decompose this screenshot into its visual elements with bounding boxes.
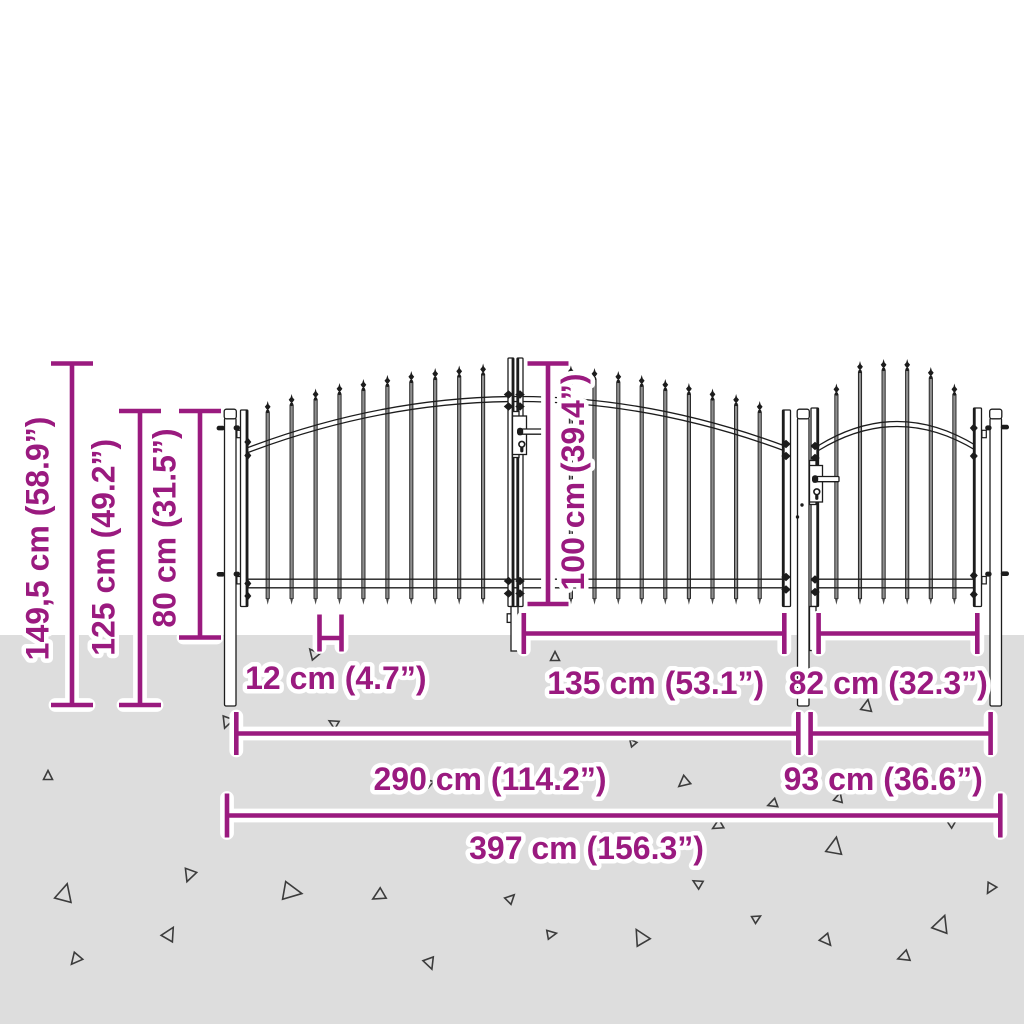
svg-text:100 cm (39.4”): 100 cm (39.4”) — [555, 373, 591, 590]
svg-text:149,5 cm (58.9”): 149,5 cm (58.9”) — [19, 417, 55, 661]
svg-text:397 cm (156.3”): 397 cm (156.3”) — [469, 830, 704, 866]
svg-text:125 cm (49.2”): 125 cm (49.2”) — [86, 439, 122, 656]
svg-text:93 cm (36.6”): 93 cm (36.6”) — [784, 761, 983, 797]
svg-text:82 cm (32.3”): 82 cm (32.3”) — [789, 665, 988, 701]
svg-text:12 cm (4.7”): 12 cm (4.7”) — [245, 660, 426, 696]
svg-text:135 cm (53.1”): 135 cm (53.1”) — [547, 665, 764, 701]
svg-text:80 cm (31.5”): 80 cm (31.5”) — [147, 428, 183, 627]
svg-text:290 cm (114.2”): 290 cm (114.2”) — [373, 761, 606, 797]
